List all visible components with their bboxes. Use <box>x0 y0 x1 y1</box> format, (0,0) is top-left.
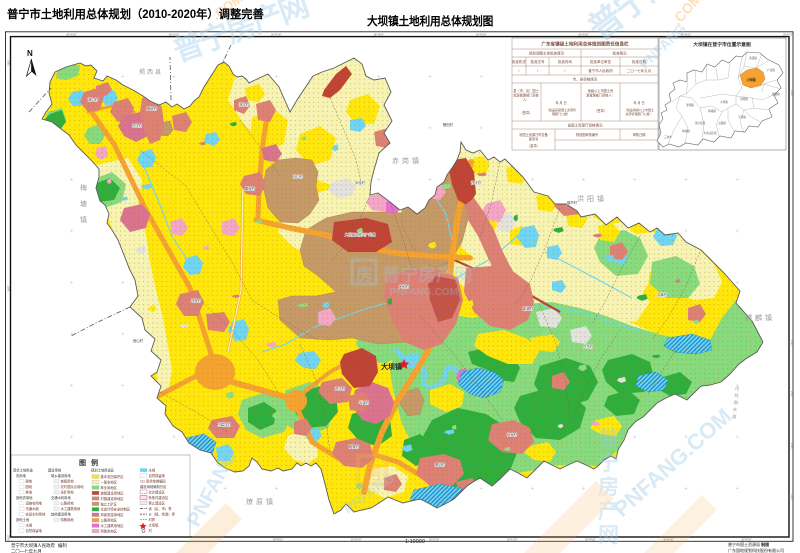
svg-text:园地: 园地 <box>26 484 33 489</box>
svg-text:大坝镇: 大坝镇 <box>746 77 755 82</box>
svg-text:村界: 村界 <box>149 517 156 522</box>
svg-text:大坝镇在普宁市位置示意图: 大坝镇在普宁市位置示意图 <box>693 41 751 48</box>
svg-text:PNFANG.COM: PNFANG.COM <box>390 287 458 298</box>
svg-text:县（市、区）国土: 县（市、区）国土 <box>513 88 539 93</box>
svg-text:农用地: 农用地 <box>16 473 27 478</box>
svg-text:2595: 2595 <box>790 443 793 449</box>
svg-text:/: / <box>537 69 538 73</box>
svg-text:梅塘镇: 梅塘镇 <box>708 109 716 113</box>
svg-text:一般农地区: 一般农地区 <box>101 479 118 484</box>
svg-text:乡（镇、街道）界: 乡（镇、街道）界 <box>149 511 176 516</box>
svg-text:径水村: 径水村 <box>507 432 518 437</box>
svg-text:广太镇: 广太镇 <box>767 68 775 72</box>
svg-text:特殊用地: 特殊用地 <box>61 517 75 522</box>
svg-text:坑: 坑 <box>733 392 740 400</box>
svg-text:大南山街道: 大南山街道 <box>704 131 717 135</box>
svg-text:生态环境安全控制区: 生态环境安全控制区 <box>101 507 131 512</box>
svg-text:水: 水 <box>732 406 738 413</box>
svg-text:林业用地区: 林业用地区 <box>101 485 118 490</box>
svg-text:大坝镇: 大坝镇 <box>149 522 160 527</box>
svg-text:网: 网 <box>598 524 619 547</box>
svg-text:塘: 塘 <box>80 199 87 208</box>
svg-text:案事号: 案事号 <box>529 137 539 142</box>
svg-text:38°47′00″: 38°47′00″ <box>783 34 794 37</box>
svg-text:宁: 宁 <box>598 451 619 475</box>
svg-text:大坝镇: 大坝镇 <box>381 362 402 371</box>
svg-text:军埠镇: 军埠镇 <box>738 115 746 119</box>
svg-text:图例: 图例 <box>79 458 103 467</box>
svg-text:西山村: 西山村 <box>133 338 144 343</box>
svg-text:水工建筑用地: 水工建筑用地 <box>61 506 81 511</box>
svg-text:2595: 2595 <box>790 494 793 500</box>
svg-text:年 月 日: 年 月 日 <box>633 100 644 105</box>
svg-text:果陇村: 果陇村 <box>245 186 256 191</box>
svg-text:省国土资源厅审核情况: 省国土资源厅审核情况 <box>568 123 603 128</box>
svg-text:梅: 梅 <box>80 183 87 192</box>
svg-text:耕地: 耕地 <box>26 479 33 484</box>
svg-text:揭西县: 揭西县 <box>139 68 163 76</box>
svg-text:38°44′00″: 38°44′00″ <box>585 539 596 542</box>
svg-text:（盖章）: （盖章） <box>527 143 540 148</box>
svg-text:特殊用地区: 特殊用地区 <box>101 529 118 534</box>
svg-text:城乡建设用地: 城乡建设用地 <box>51 473 71 478</box>
svg-text:里湖镇: 里湖镇 <box>686 103 694 107</box>
svg-text:洪阳镇: 洪阳镇 <box>577 194 607 203</box>
svg-text:新锡村: 新锡村 <box>523 306 534 311</box>
svg-text:公路用地: 公路用地 <box>61 501 75 506</box>
svg-text:水域: 水域 <box>149 468 156 473</box>
svg-text:寨河村: 寨河村 <box>435 462 446 467</box>
svg-text:九江村: 九江村 <box>335 386 346 391</box>
svg-text:占陇镇: 占陇镇 <box>718 121 726 125</box>
svg-text:38°40′00″: 38°40′00″ <box>66 34 77 37</box>
svg-text:水域: 水域 <box>26 523 33 528</box>
svg-text:半溪村: 半溪村 <box>359 400 370 405</box>
svg-text:年 月 日: 年 月 日 <box>555 100 566 105</box>
svg-text:38°44′00″: 38°44′00″ <box>476 34 487 37</box>
svg-text:坑塘水面: 坑塘水面 <box>26 506 40 511</box>
svg-text:设施农用地: 设施农用地 <box>26 501 43 506</box>
svg-text:镇: 镇 <box>80 215 87 224</box>
svg-text:燎原镇: 燎原镇 <box>246 497 276 506</box>
svg-text:资源管理部门公章）: 资源管理部门公章） <box>625 111 652 116</box>
svg-text:理部门公章）: 理部门公章） <box>552 111 570 116</box>
svg-text:白马村: 白马村 <box>583 344 594 349</box>
svg-text:2595: 2595 <box>790 90 793 96</box>
svg-text:批准时间: 批准时间 <box>558 59 572 64</box>
svg-text:省（区、市）界: 省（区、市）界 <box>149 506 173 511</box>
svg-text:汤坑村: 汤坑村 <box>239 102 250 107</box>
svg-text:大坝镇区振兴产业园: 大坝镇区振兴产业园 <box>345 232 376 237</box>
svg-text:白: 白 <box>734 385 740 393</box>
svg-text:平薛村: 平薛村 <box>657 292 668 297</box>
svg-text:城镇建设用地区: 城镇建设用地区 <box>101 490 125 495</box>
svg-text:源管理部门审核人：: 源管理部门审核人： <box>586 93 615 98</box>
svg-text:湖: 湖 <box>733 399 740 407</box>
svg-text:半径村: 半径村 <box>355 180 366 185</box>
svg-text:房: 房 <box>356 264 373 284</box>
svg-text:湖心村: 湖心村 <box>88 97 99 102</box>
svg-text:现状土地用途: 现状土地用途 <box>13 468 33 473</box>
svg-text:自然保留地: 自然保留地 <box>149 473 166 478</box>
svg-text:葵岭村: 葵岭村 <box>147 106 158 111</box>
svg-text:其他农用地: 其他农用地 <box>16 495 33 500</box>
svg-text:38°45′00″: 38°45′00″ <box>578 34 589 37</box>
svg-text:广东省镇级土地利用总体规划图责任信息栏: 广东省镇级土地利用总体规划图责任信息栏 <box>541 41 629 48</box>
svg-text:流沙街道: 流沙街道 <box>695 121 706 125</box>
svg-text:N: N <box>27 49 33 58</box>
svg-text:38°43′00″: 38°43′00″ <box>507 539 518 542</box>
svg-text:梅林镇: 梅林镇 <box>682 129 690 133</box>
svg-text:麒麟镇: 麒麟镇 <box>772 92 780 96</box>
svg-text:省国土资源厅同意备: 省国土资源厅同意备 <box>519 132 548 137</box>
svg-text:农田水利用地: 农田水利用地 <box>26 512 46 517</box>
svg-text:村镇建设用地区: 村镇建设用地区 <box>101 496 125 501</box>
svg-text:2595: 2595 <box>7 60 10 66</box>
svg-text:许坑村: 许坑村 <box>471 180 482 185</box>
svg-text:允许建设区: 允许建设区 <box>149 489 166 494</box>
svg-text:批准单位审查: 批准单位审查 <box>590 59 611 64</box>
svg-text:其他建设用地: 其他建设用地 <box>51 512 71 517</box>
svg-text:其他土地: 其他土地 <box>16 517 30 522</box>
svg-text:大坪镇: 大坪镇 <box>720 100 728 104</box>
svg-text:普: 普 <box>598 427 619 451</box>
svg-text:批准情况: 批准情况 <box>613 51 627 56</box>
svg-text:葫芦村: 葫芦村 <box>567 200 578 205</box>
svg-text:38°43′00″: 38°43′00″ <box>373 34 384 37</box>
svg-text:自然保留地: 自然保留地 <box>26 528 43 533</box>
svg-text:白坑村: 白坑村 <box>132 123 143 128</box>
svg-text:38°41′00″: 38°41′00″ <box>351 539 362 542</box>
svg-text:马院村: 马院村 <box>191 298 202 303</box>
svg-text:38°40′00″: 38°40′00″ <box>273 539 284 542</box>
svg-text:/: / <box>519 69 520 73</box>
svg-text:采矿用地: 采矿用地 <box>61 490 75 495</box>
svg-text:公路用地区: 公路用地区 <box>101 518 118 523</box>
svg-text:111 现状地类编码: 111 现状地类编码 <box>140 479 166 484</box>
svg-text:独立工矿区: 独立工矿区 <box>101 501 118 506</box>
svg-text:地级以上市国土资: 地级以上市国土资 <box>588 88 614 93</box>
svg-text:2595: 2595 <box>790 340 793 346</box>
svg-text:建设用地管制分区: 建设用地管制分区 <box>140 484 167 489</box>
svg-text:三坑乡: 三坑乡 <box>664 135 672 139</box>
svg-text:粗寨村: 粗寨村 <box>349 444 360 449</box>
svg-text:有条件建设区: 有条件建设区 <box>149 495 169 500</box>
svg-text:2595: 2595 <box>7 286 10 292</box>
svg-text:规划调整主体批准情况: 规划调整主体批准情况 <box>529 51 564 56</box>
svg-text:赤岗镇: 赤岗镇 <box>392 156 422 165</box>
svg-text:（签章）: （签章） <box>594 108 607 113</box>
svg-text:38°42′00″: 38°42′00″ <box>429 539 440 542</box>
svg-text:南溪镇: 南溪镇 <box>749 56 757 60</box>
svg-text:资源管理部门审核: 资源管理部门审核 <box>513 93 539 98</box>
svg-text:（签章）: （签章） <box>520 110 533 115</box>
svg-text:2595: 2595 <box>790 391 793 397</box>
svg-text:禁止建设区: 禁止建设区 <box>149 500 166 505</box>
svg-text:规划图审核编号: 规划图审核编号 <box>576 132 598 137</box>
svg-text:2595: 2595 <box>7 535 10 541</box>
svg-text:农村居民点用地: 农村居民点用地 <box>61 484 85 489</box>
svg-text:批准文号: 批准文号 <box>531 59 545 64</box>
svg-text:市、县审核情况: 市、县审核情况 <box>573 77 598 82</box>
svg-text:人：: 人： <box>523 98 529 102</box>
svg-text:林地: 林地 <box>26 490 33 495</box>
svg-text:基本农田保护区: 基本农田保护区 <box>101 474 125 479</box>
svg-text:普宁市人民政府: 普宁市人民政府 <box>588 68 613 73</box>
svg-text:城镇用地: 城镇用地 <box>61 479 75 484</box>
svg-text:麒麟镇: 麒麟镇 <box>745 313 775 322</box>
svg-text:批准机关: 批准机关 <box>512 59 526 64</box>
svg-text:洪阳镇: 洪阳镇 <box>740 97 748 101</box>
svg-text:社山村: 社山村 <box>293 174 304 179</box>
svg-text:/: / <box>565 69 566 73</box>
svg-text:交通水利用地: 交通水利用地 <box>51 495 71 500</box>
svg-text:白暮洋村: 白暮洋村 <box>217 422 231 427</box>
svg-text:审核日期: 审核日期 <box>633 132 646 137</box>
svg-text:建设用地: 建设用地 <box>48 468 62 473</box>
svg-text:普宁房产网: 普宁房产网 <box>382 264 472 285</box>
svg-text:规划土地用途区: 规划土地用途区 <box>91 468 115 473</box>
svg-text:水工建筑用地区: 水工建筑用地区 <box>101 523 125 528</box>
svg-text:风景旅游用地区: 风景旅游用地区 <box>101 512 125 517</box>
svg-text:粮田村: 粮田村 <box>443 122 454 127</box>
